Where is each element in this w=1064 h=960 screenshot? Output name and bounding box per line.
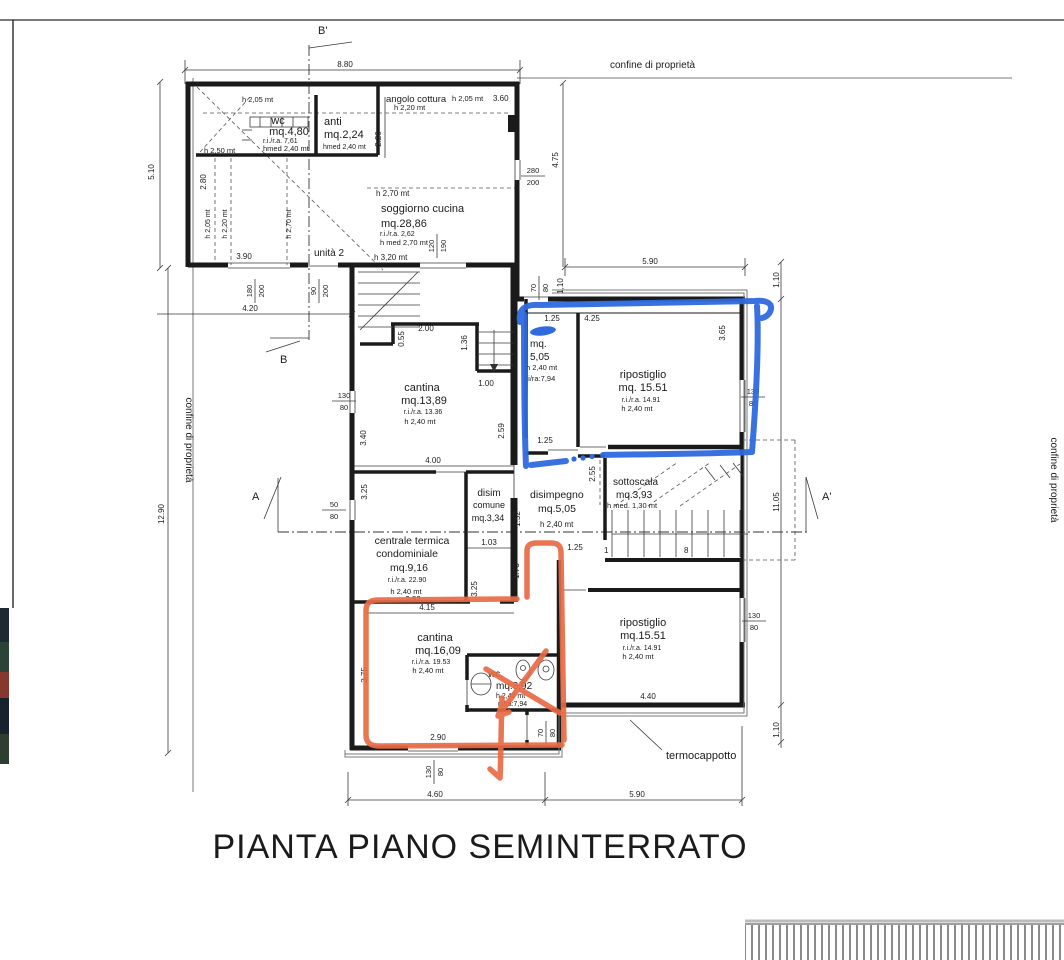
ripbot-area: mq.15.51 [620,630,666,642]
disim-l2: comune [473,500,505,510]
dim-510v: 5.10 [147,164,156,180]
fraction-70-80-d: 70 80 [536,721,557,745]
termocappotto-leader [630,720,662,750]
room-labels: h 2,05 mt wc mq.4,80 r.i./r.a. 7,61 hmed… [204,94,667,708]
fraction-70-80-a: 70 80 [529,276,550,300]
dim-100: 1.00 [478,379,494,388]
boundary-label-left: confine di proprietà [183,397,194,482]
dim-475v: 4.75 [551,152,560,168]
mq505-rira: r.i/ra:7,94 [524,374,555,383]
svg-text:80: 80 [340,403,348,412]
sogg-area: mq.28,86 [381,218,427,230]
section-a-prime: A' [822,491,831,503]
fraction-50-80: 50 80 [322,500,346,521]
svg-text:200: 200 [257,285,266,298]
dim-390: 3.90 [236,252,252,261]
svg-text:80: 80 [541,284,550,292]
dim-880: 8.80 [337,60,353,69]
dim-340r: 3.40 [359,430,368,446]
cantina2-h: h 2,40 mt [412,666,444,675]
dim-590b: 5.90 [629,790,645,799]
dim-325ar: 3.25 [360,484,369,500]
dim-365r: 3.65 [718,325,727,341]
ripbot-name: ripostiglio [620,617,666,629]
dim-125b: 1.25 [537,436,553,445]
dim-259r: 2.59 [497,423,506,439]
svg-text:50: 50 [330,500,338,509]
unit-label: unità 2 [314,248,344,259]
dim-055r: 0.55 [397,331,406,347]
fraction-90-200: 90 200 [309,279,330,303]
svg-text:200: 200 [321,285,330,298]
photo-sliver [0,608,9,764]
stair-flight-upper [358,272,420,330]
cantina1-h: h 2,40 mt [404,417,436,426]
svg-text:180: 180 [245,285,254,298]
dim-400: 4.00 [425,456,441,465]
dim-103: 1.03 [481,538,497,547]
disim-area: mq.3,34 [472,513,505,523]
dim-110rb: 1,10 [772,722,781,738]
floorplan-svg: confine di proprietà confine di propriet… [0,0,1064,960]
mq505-h: h 2,40 mt [526,363,558,372]
sottoscala-name: sottoscala [613,477,658,488]
wc1-area: mq.4,80 [269,126,309,138]
fraction-120-190: 120 190 [427,234,448,258]
boundary-lines [193,78,1012,792]
dim-texts: 8.80 4.20 3.90 2.00 1.00 4.00 1.25 4.25 … [236,60,689,799]
cantina2-area: mq.16,09 [415,645,461,657]
cantina2-name: cantina [417,632,453,644]
boundary-label-top: confine di proprietà [610,60,695,71]
dim-200: 2.00 [418,324,434,333]
riptop-name: ripostiglio [620,369,666,381]
svg-text:280: 280 [527,166,540,175]
svg-text:80: 80 [330,512,338,521]
cantina1-name: cantina [404,382,440,394]
cantina2-rira: r.i./r.a. 19.53 [412,659,451,666]
angolo-w: 3.60 [493,94,509,103]
svg-text:130: 130 [338,391,351,400]
wc1-h-left: h 2,50 mt [204,146,236,155]
riptop-area: mq. 15.51 [619,382,668,394]
dim-125a: 1.25 [544,314,560,323]
dim-173r: 1.73 [512,563,521,579]
svg-text:200: 200 [527,178,540,187]
svg-text:70: 70 [536,729,545,737]
drawing-title: PIANTA PIANO SEMINTERRATO [212,828,747,866]
svg-text:130: 130 [424,766,433,779]
dim-415: 4.15 [419,603,435,612]
centrale-l2: condominiale [376,548,438,560]
svg-text:90: 90 [309,287,318,295]
fraction-130-80-c: 130 80 [424,760,445,784]
fraction-130-80-a: 130 80 [332,391,356,412]
anti-name: anti [324,116,342,128]
dim-280r: 2.80 [199,174,208,190]
svg-text:120: 120 [427,240,436,253]
svg-text:130: 130 [748,611,761,620]
dim-590t: 5.90 [642,257,658,266]
disimpegno-name: disimpegno [530,489,584,501]
drawing-sheet: confine di proprietà confine di propriet… [0,0,1064,960]
svg-text:80: 80 [436,768,445,776]
angolo-h2: h 2,20 mt [394,103,426,112]
termocappotto-label: termocappotto [666,750,736,762]
fraction-180-200: 180 200 [245,279,266,303]
sottoscala-h: h med. 1,30 mt [607,501,658,510]
svg-text:70: 70 [529,284,538,292]
svg-text:80: 80 [548,729,557,737]
wc1-h-top: h 2,05 mt [242,95,274,104]
dim-1105r: 11.05 [772,492,781,512]
cantina1-rira: r.i./r.a. 13.36 [404,409,443,416]
section-b-prime: B' [318,25,327,37]
dim-460: 4.60 [427,790,443,799]
boundary-label-right: confine di proprietà [1048,437,1059,522]
mq505-l1: mq. [530,339,547,350]
dim-h270r: h 2,70 mt [286,209,293,238]
stair-step-8: 8 [684,546,689,555]
centrale-area: mq.9,16 [390,562,428,574]
riptop-h: h 2,40 mt [621,404,653,413]
anti-area: mq.2,24 [324,129,364,141]
ripbot-h: h 2,40 mt [622,652,654,661]
sogg-name: soggiorno cucina [381,203,465,215]
anti-h: hmed 2,40 mt [323,144,366,151]
centrale-rira: r.i./r.a. 22.90 [388,577,427,584]
dim-110rt: 1,10 [772,272,781,288]
wc1-h: hmed 2,40 mt [263,144,310,153]
angolo-h1: h 2,05 mt [452,94,484,103]
riptop-rira: r.i./r.a. 14.91 [622,397,661,404]
dim-1290v: 12.90 [157,503,166,524]
dim-h205r: h 2,05 mt [205,209,212,238]
stair-flight-mid [479,330,514,372]
cantina1-area: mq.13,89 [401,395,447,407]
fraction-130-80-e: 130 80 [742,611,766,632]
dim-420: 4.20 [242,304,258,313]
dim-h220r: h 2,20 mt [222,209,229,238]
svg-text:80: 80 [750,623,758,632]
mq505-l2: 5,05 [530,352,550,363]
disim-l1: disim [477,488,500,499]
disimpegno-area: mq.5,05 [538,503,576,515]
centrale-l1: centrale termica [375,535,450,547]
dimension-lines [157,60,784,806]
svg-text:190: 190 [439,240,448,253]
dim-440: 4.40 [640,692,656,701]
dim-255r: 2.55 [588,466,597,482]
disimpegno-h: h 2,40 mt [540,520,574,529]
sogg-h: h med 2,70 mt [380,238,429,247]
section-b: B [280,354,287,366]
dim-290: 2.90 [430,733,446,742]
dim-152r: 1.52 [513,511,522,527]
sogg-h-top: h 2,70 mt [376,189,410,198]
dim-136r: 1.36 [460,335,469,351]
dim-110top: 1,10 [556,278,565,294]
fraction-280-200: 280 200 [521,166,545,187]
dim-125c: 1.25 [567,543,583,552]
sogg-hdoor: h 3,20 mt [374,253,408,262]
hatched-bar [745,921,1064,960]
sottoscala-area: mq.3,93 [616,490,653,501]
section-a: A [252,491,260,503]
dim-texts-rotated: 2.80 h 2,05 mt h 2,20 mt h 2,70 mt 2.20 … [147,131,781,738]
sogg-rira: r.i./r.a. 2,62 [380,231,415,238]
stair-step-1: 1 [604,546,609,555]
dim-425: 4.25 [584,314,600,323]
ripbot-rira: r.i./r.a. 14.91 [623,645,662,652]
dim-220v: 2.20 [374,131,383,147]
dim-325br: 3.25 [470,581,479,597]
